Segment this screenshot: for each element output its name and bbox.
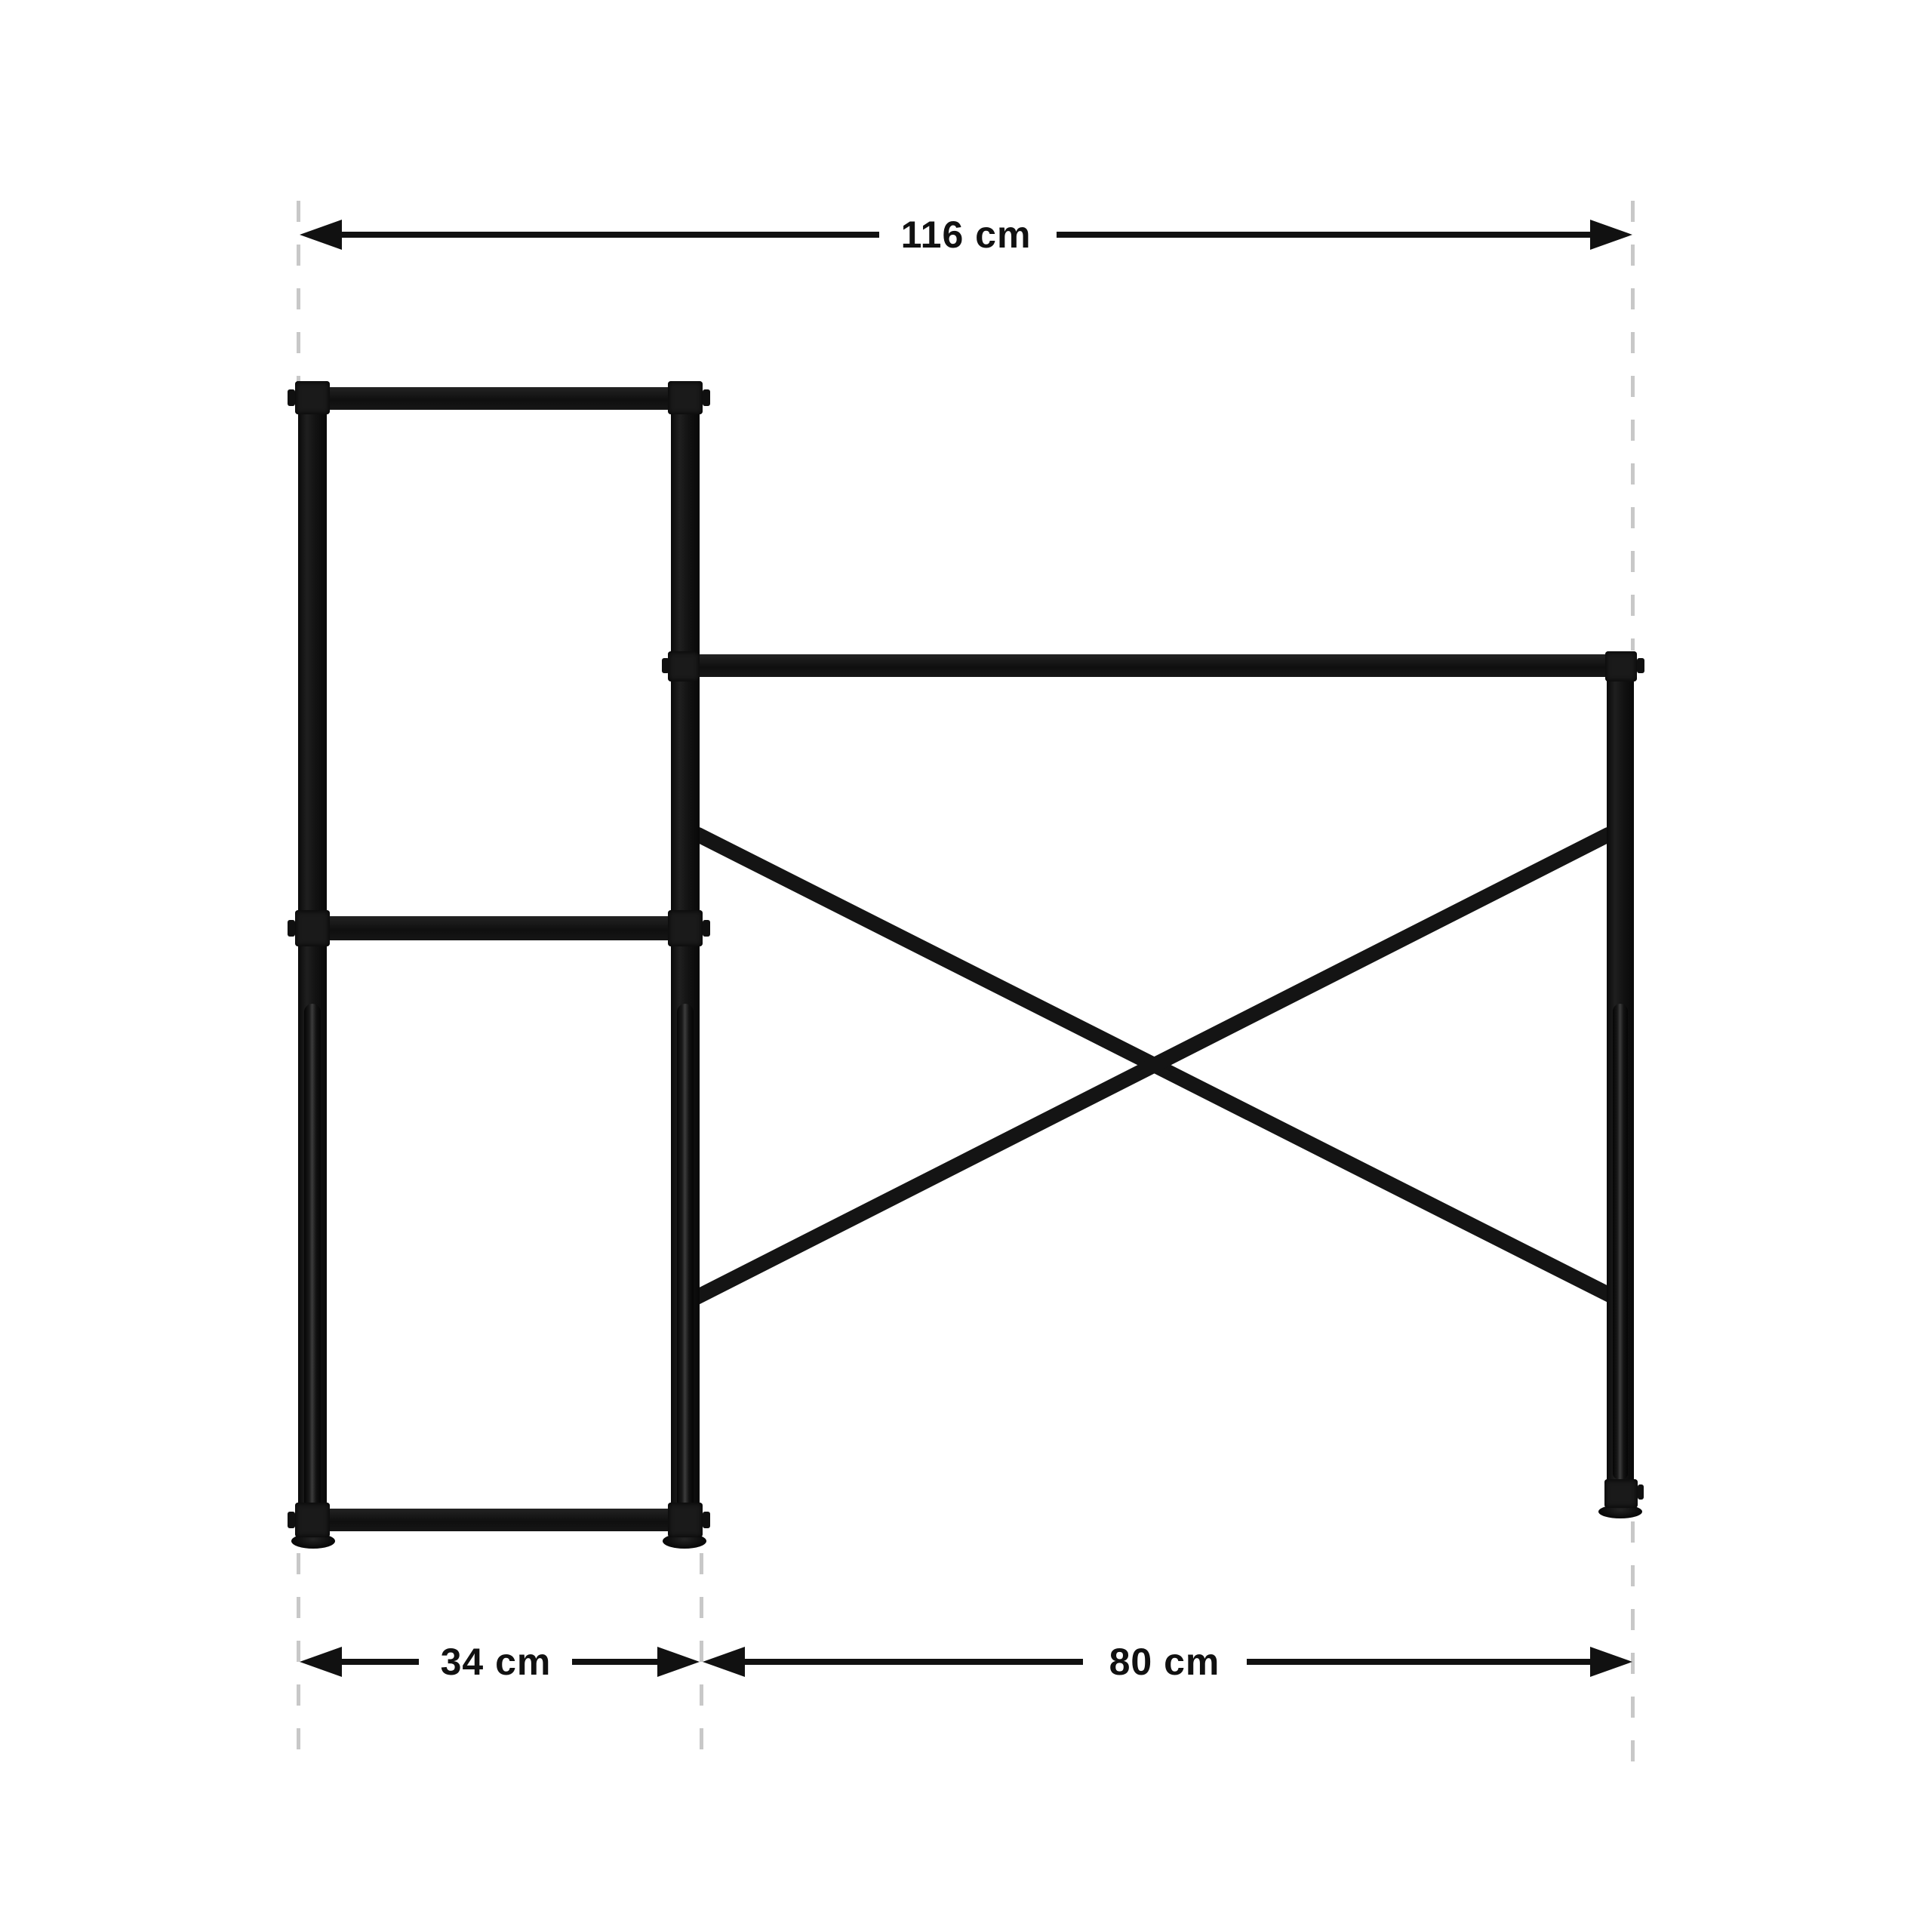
bolt-nub	[288, 1512, 295, 1528]
dimension-label: 80 cm	[1109, 1640, 1220, 1684]
furniture-dimension-diagram: 116 cm 34 cm 80 cm	[0, 0, 1932, 1932]
arrow-right-icon	[1590, 220, 1632, 250]
shelf-bottom-bar	[327, 1509, 671, 1531]
connector-block-top-right	[668, 381, 703, 414]
connector-block-middle-left	[295, 910, 330, 946]
connector-block-bottom-left	[295, 1503, 330, 1537]
dimension-line	[336, 232, 879, 238]
dimension-line	[572, 1659, 657, 1665]
dimension-label: 34 cm	[441, 1640, 552, 1684]
dimension-line	[336, 1659, 419, 1665]
bolt-nub	[703, 389, 710, 406]
arrow-right-icon	[1590, 1647, 1632, 1677]
cross-braces	[0, 0, 1932, 1932]
bolt-nub	[662, 658, 669, 673]
bolt-nub	[703, 1512, 710, 1528]
connector-block-bottom-right	[668, 1503, 703, 1537]
bolt-nub	[1638, 1484, 1644, 1500]
dimension-line	[1247, 1659, 1595, 1665]
leg-tube-right	[1613, 1004, 1628, 1479]
leg-tube-middle	[677, 1004, 694, 1532]
leg-tube-left	[304, 1004, 321, 1532]
arrow-right-icon	[657, 1647, 700, 1677]
bolt-nub	[288, 389, 295, 406]
shelf-middle-bar	[327, 916, 671, 940]
bolt-nub	[703, 920, 710, 937]
connector-block-desk-right	[1605, 651, 1637, 681]
desk-top-bar	[694, 654, 1608, 677]
shelf-top-bar	[327, 387, 671, 410]
dimension-line	[739, 1659, 1083, 1665]
connector-block-desk-left	[668, 651, 700, 681]
connector-block-top-left	[295, 381, 330, 414]
dimension-label: 116 cm	[901, 213, 1032, 257]
bolt-nub	[288, 920, 295, 937]
connector-block-middle-right	[668, 910, 703, 946]
bolt-nub	[1637, 658, 1644, 673]
connector-block-leg-bottom	[1604, 1479, 1638, 1508]
dimension-line	[1057, 232, 1592, 238]
